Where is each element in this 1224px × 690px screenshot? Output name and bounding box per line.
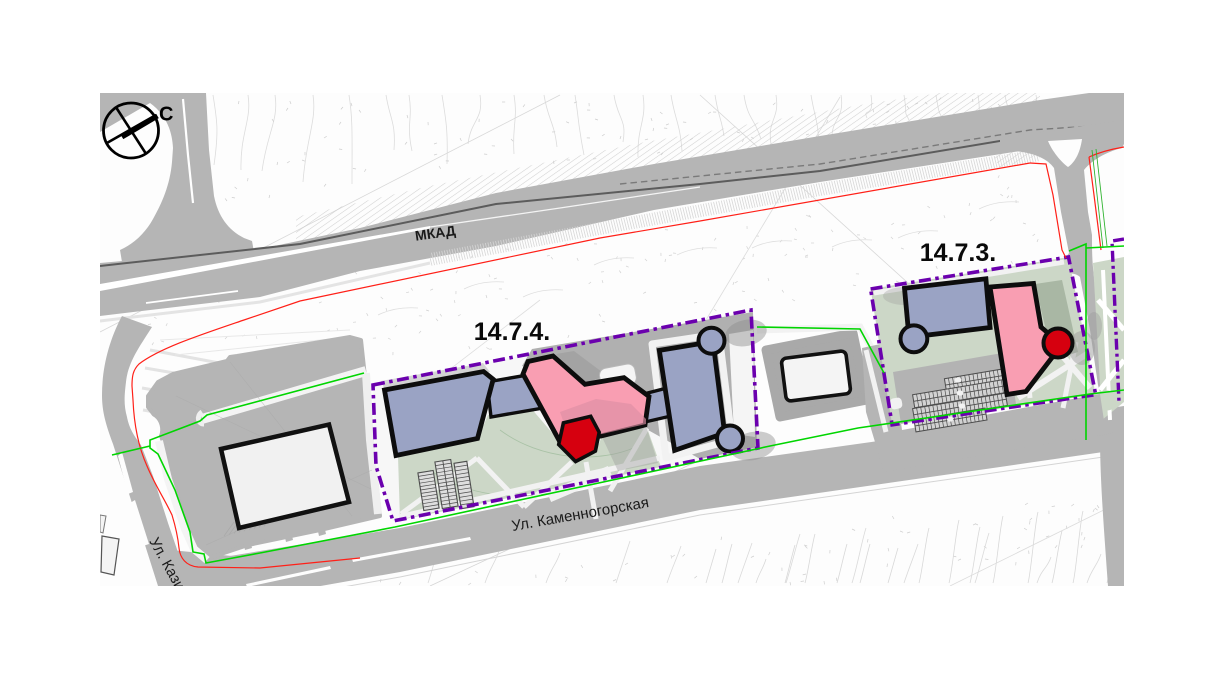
svg-text:С: С <box>159 104 173 126</box>
svg-text:14.7.4.: 14.7.4. <box>474 318 550 346</box>
svg-text:14.7.3.: 14.7.3. <box>920 239 996 267</box>
